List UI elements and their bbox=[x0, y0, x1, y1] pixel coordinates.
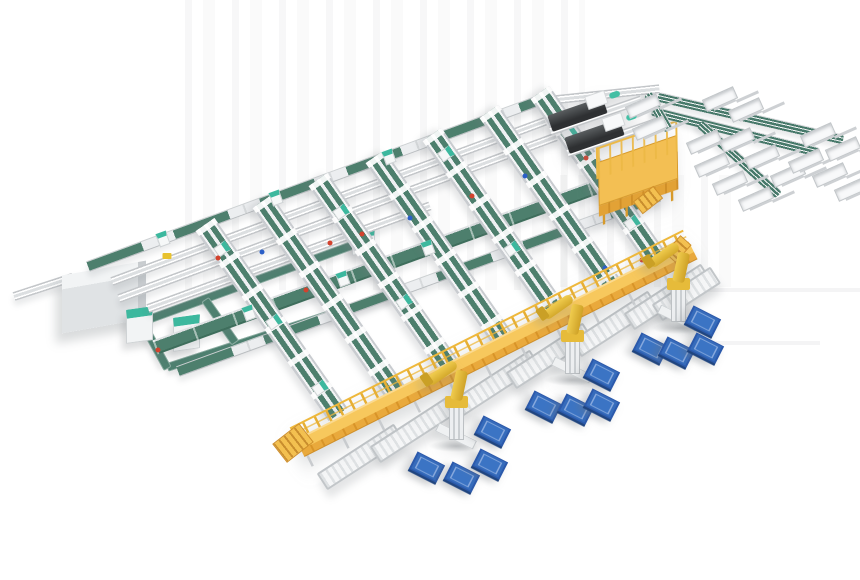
blue-indicator-light bbox=[523, 174, 528, 179]
factory-layout-render bbox=[0, 0, 860, 580]
pallet bbox=[688, 332, 724, 363]
machine-lid bbox=[608, 90, 620, 99]
discharge-chute-stand bbox=[738, 186, 774, 212]
red-indicator-light bbox=[304, 288, 309, 293]
pallet bbox=[409, 451, 445, 482]
blue-indicator-light bbox=[408, 216, 413, 221]
red-indicator-light bbox=[360, 232, 365, 237]
yellow-indicator-light bbox=[163, 253, 172, 259]
shadow-artifact-line bbox=[714, 341, 820, 345]
discharge-chute-stand bbox=[694, 152, 730, 178]
red-indicator-light bbox=[156, 348, 161, 353]
palletizing-robot bbox=[429, 356, 483, 448]
pallet bbox=[526, 390, 562, 421]
discharge-chute-stand bbox=[834, 176, 860, 202]
discharge-chute-stand bbox=[812, 162, 848, 188]
discharge-chute-stand bbox=[744, 144, 780, 170]
robot-pedestal bbox=[565, 340, 580, 374]
shadow-artifact-line bbox=[688, 288, 860, 292]
red-indicator-light bbox=[470, 194, 475, 199]
robot-pedestal bbox=[449, 406, 464, 440]
pallet bbox=[659, 336, 695, 367]
red-indicator-light bbox=[328, 241, 333, 246]
robot-pedestal bbox=[671, 288, 686, 322]
blue-indicator-light bbox=[260, 250, 265, 255]
red-indicator-light bbox=[216, 256, 221, 261]
